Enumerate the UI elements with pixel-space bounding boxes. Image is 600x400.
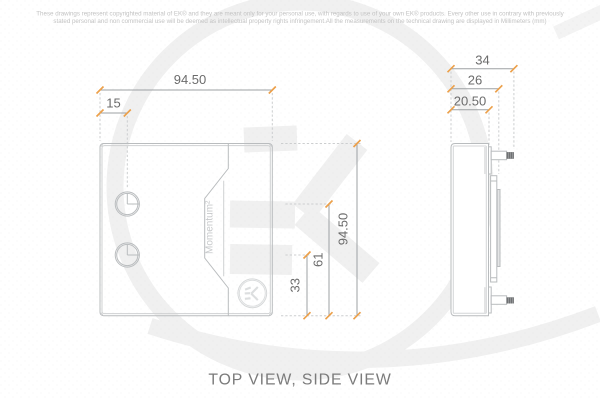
- svg-text:20.50: 20.50: [454, 94, 487, 109]
- svg-text:26: 26: [468, 73, 482, 88]
- svg-text:61: 61: [311, 253, 326, 267]
- svg-text:stated personal and non commer: stated personal and non commercial use w…: [53, 18, 546, 25]
- svg-text:94.50: 94.50: [336, 213, 351, 246]
- svg-text:33: 33: [288, 278, 303, 292]
- svg-text:Momentum²: Momentum²: [205, 200, 216, 254]
- svg-text:TOP VIEW, SIDE VIEW: TOP VIEW, SIDE VIEW: [208, 372, 391, 389]
- svg-text:These drawings represent copyr: These drawings represent copyrighted mat…: [36, 11, 564, 18]
- svg-text:34: 34: [475, 52, 489, 67]
- svg-text:15: 15: [106, 96, 120, 111]
- svg-text:94.50: 94.50: [174, 72, 207, 87]
